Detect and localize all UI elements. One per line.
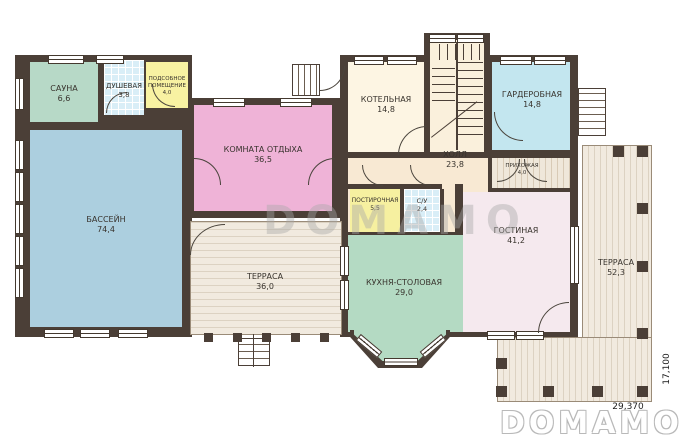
room-label-terrace-left: ТЕРРАСА 36,0 <box>225 272 305 293</box>
window-symbol <box>15 204 24 234</box>
wall-wc-hall <box>440 189 444 232</box>
stair-winder-treads <box>432 44 482 60</box>
window-symbol <box>500 56 532 65</box>
terrace-post <box>637 146 648 157</box>
window-symbol <box>15 172 24 202</box>
room-label-shower: ДУШЕВАЯ 3,8 <box>98 82 150 100</box>
window-symbol <box>44 329 74 338</box>
terrace-post <box>637 386 648 397</box>
room-label-lounge: КОМНАТА ОТДЫХА 36,5 <box>217 145 309 166</box>
room-label-laundry: ПОСТИРОЧНАЯ 5,5 <box>346 197 404 213</box>
terrace-post <box>233 333 242 342</box>
room-label-entry: ПРИХОЖАЯ 4,0 <box>494 163 550 177</box>
window-symbol <box>213 98 245 107</box>
terrace-post <box>613 146 624 157</box>
terrace-post <box>496 386 507 397</box>
room-label-hall: ХОЛЛ 23,8 <box>415 150 495 171</box>
terrace-post <box>262 333 271 342</box>
floor-plan-canvas: САУНА 6,6 ДУШЕВАЯ 3,8 ПОДСОБНОЕ ПОМЕЩЕНИ… <box>0 0 692 446</box>
room-label-utility: ПОДСОБНОЕ ПОМЕЩЕНИЕ 4,0 <box>144 76 190 97</box>
dimension-right: 17,100 <box>662 339 672 399</box>
room-label-boiler: КОТЕЛЬНАЯ 14,8 <box>349 95 423 116</box>
terrace-post <box>496 358 507 369</box>
window-symbol <box>570 226 579 284</box>
window-symbol <box>15 140 24 170</box>
window-symbol <box>15 236 24 266</box>
window-symbol <box>80 329 110 338</box>
entrance-porch-steps <box>292 64 320 96</box>
terrace-post <box>637 203 648 214</box>
room-label-sauna: САУНА 6,6 <box>32 84 96 105</box>
window-symbol <box>457 34 484 43</box>
window-symbol <box>354 56 384 65</box>
window-symbol <box>384 358 418 366</box>
room-label-living: ГОСТИНАЯ 41,2 <box>473 226 559 247</box>
window-symbol <box>118 329 148 338</box>
room-label-wardrobe: ГАРДЕРОБНАЯ 14,8 <box>494 90 570 111</box>
room-label-pool: БАССЕЙН 74,4 <box>60 215 152 236</box>
terrace-steps-axis <box>253 334 254 367</box>
terrace-post <box>291 333 300 342</box>
window-symbol <box>429 34 456 43</box>
window-symbol <box>96 55 124 64</box>
window-symbol <box>340 246 349 276</box>
stair-left-flight <box>432 62 455 108</box>
window-symbol <box>340 280 349 310</box>
stair-right-flight <box>458 62 483 142</box>
brand-logo: DOMAMO <box>500 406 675 441</box>
window-symbol <box>15 268 24 298</box>
room-terrace-right-wing-floor <box>497 337 652 402</box>
window-symbol <box>48 55 84 64</box>
room-label-terrace-right: ТЕРРАСА 52,3 <box>587 258 645 279</box>
terrace-post <box>637 328 648 339</box>
wall-hall-living <box>455 184 463 235</box>
window-symbol <box>534 56 566 65</box>
terrace-garden-steps <box>238 338 270 366</box>
terrace-post <box>204 333 213 342</box>
terrace-post <box>543 386 554 397</box>
terrace-post <box>592 386 603 397</box>
window-symbol <box>15 78 24 110</box>
window-symbol <box>280 98 312 107</box>
window-symbol <box>387 56 417 65</box>
side-porch-steps <box>578 88 606 136</box>
room-label-kitchen: КУХНЯ-СТОЛОВАЯ 29,0 <box>352 278 456 299</box>
room-label-wc: С/У 2,4 <box>407 197 437 214</box>
terrace-post <box>320 333 329 342</box>
window-symbol <box>487 331 515 340</box>
